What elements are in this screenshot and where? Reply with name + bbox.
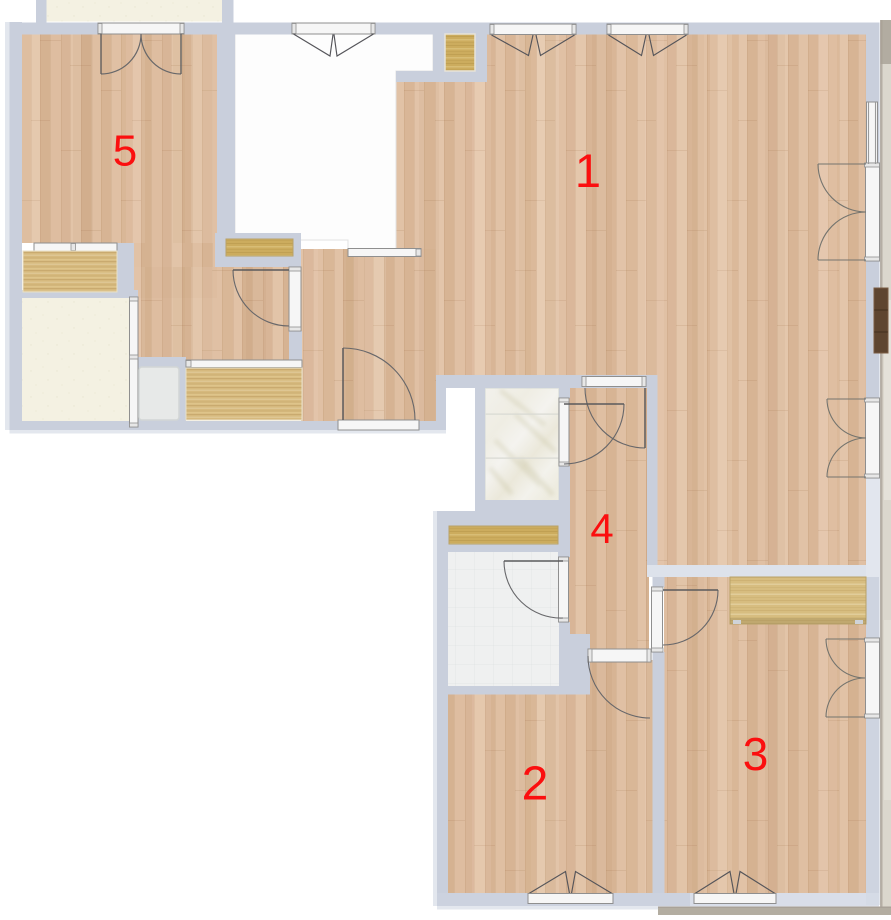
svg-text:4: 4	[590, 505, 613, 552]
svg-text:3: 3	[743, 728, 769, 780]
svg-text:5: 5	[113, 127, 137, 176]
svg-text:2: 2	[522, 758, 549, 811]
svg-text:1: 1	[575, 144, 601, 197]
